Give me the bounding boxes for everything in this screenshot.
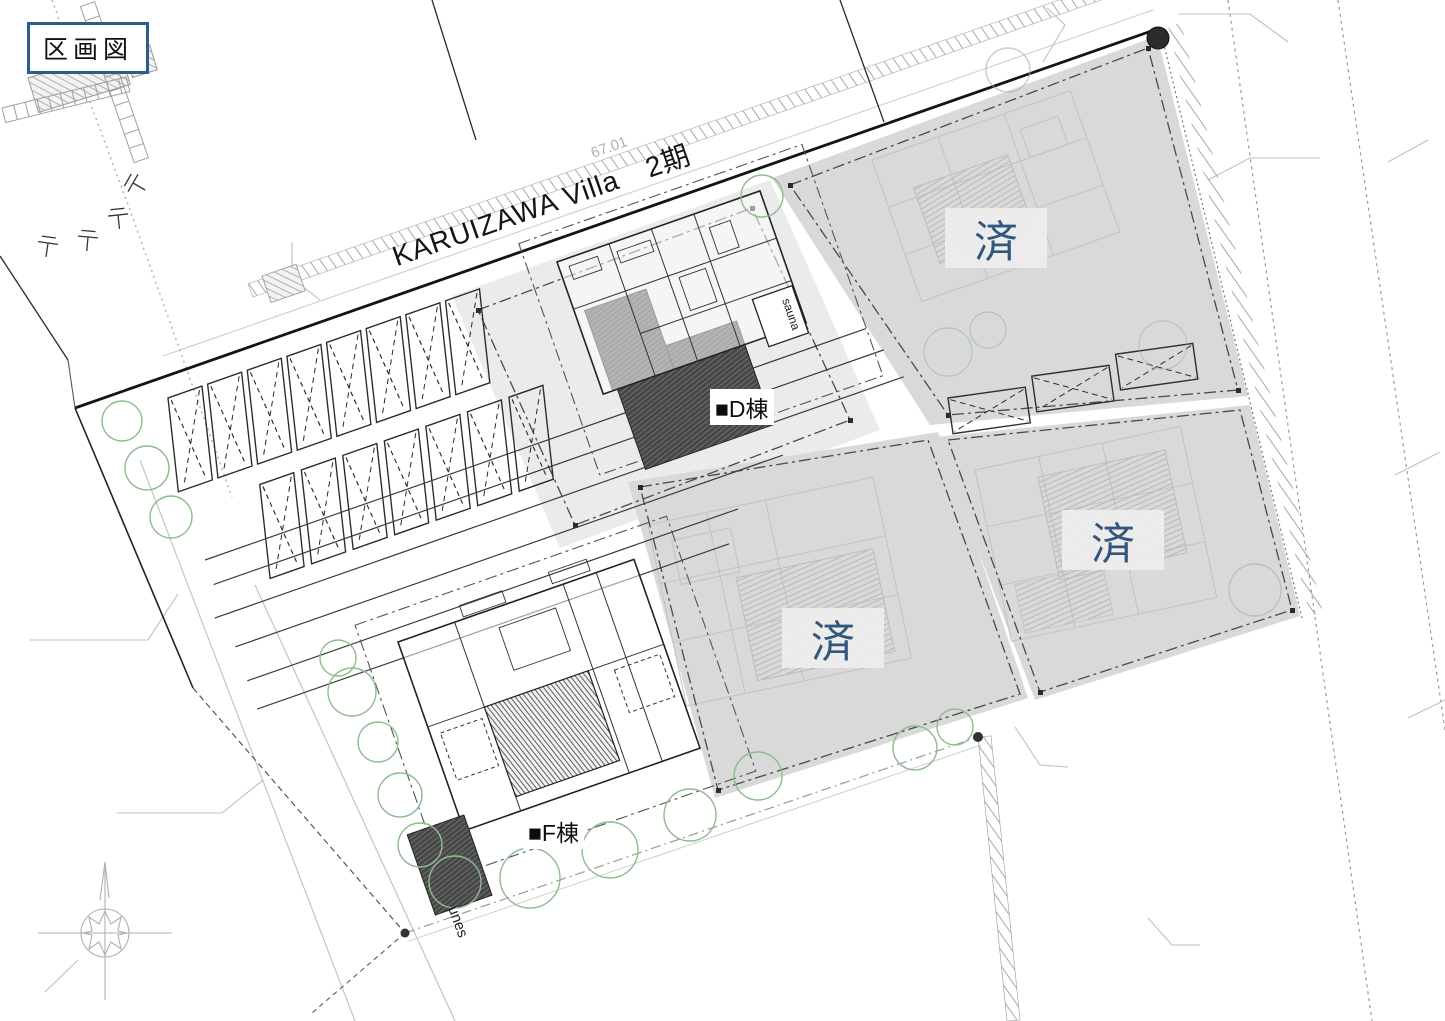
building-d-label: ■D棟 bbox=[710, 389, 774, 425]
building-d-label-text: ■D棟 bbox=[715, 396, 769, 422]
drawing-title-box: 区画図 bbox=[27, 22, 149, 74]
sold-badge-2-text: 済 bbox=[1091, 508, 1135, 572]
sold-badge-1-text: 済 bbox=[974, 206, 1018, 270]
corner-monument bbox=[1147, 27, 1169, 49]
sold-badge-3: 済 bbox=[782, 608, 884, 668]
f-note-text: unes bbox=[444, 904, 471, 940]
survey-marks bbox=[36, 171, 150, 258]
building-f-label: ■F棟 bbox=[523, 813, 584, 849]
sold-badge-2: 済 bbox=[1062, 510, 1164, 570]
site-plan-page: 67.01 sauna unes 区画図 KARUIZAWA Villa 2期 … bbox=[0, 0, 1445, 1021]
boundary-monument bbox=[973, 732, 983, 742]
drawing-title: 区画図 bbox=[43, 36, 133, 64]
site-plan-drawing: 67.01 sauna unes bbox=[0, 0, 1445, 1021]
building-f-label-text: ■F棟 bbox=[528, 820, 579, 846]
sold-badge-3-text: 済 bbox=[811, 606, 855, 670]
south-boundary bbox=[312, 737, 981, 1013]
sold-badge-1: 済 bbox=[945, 208, 1047, 268]
fence-hatch-strip bbox=[978, 736, 1020, 1021]
